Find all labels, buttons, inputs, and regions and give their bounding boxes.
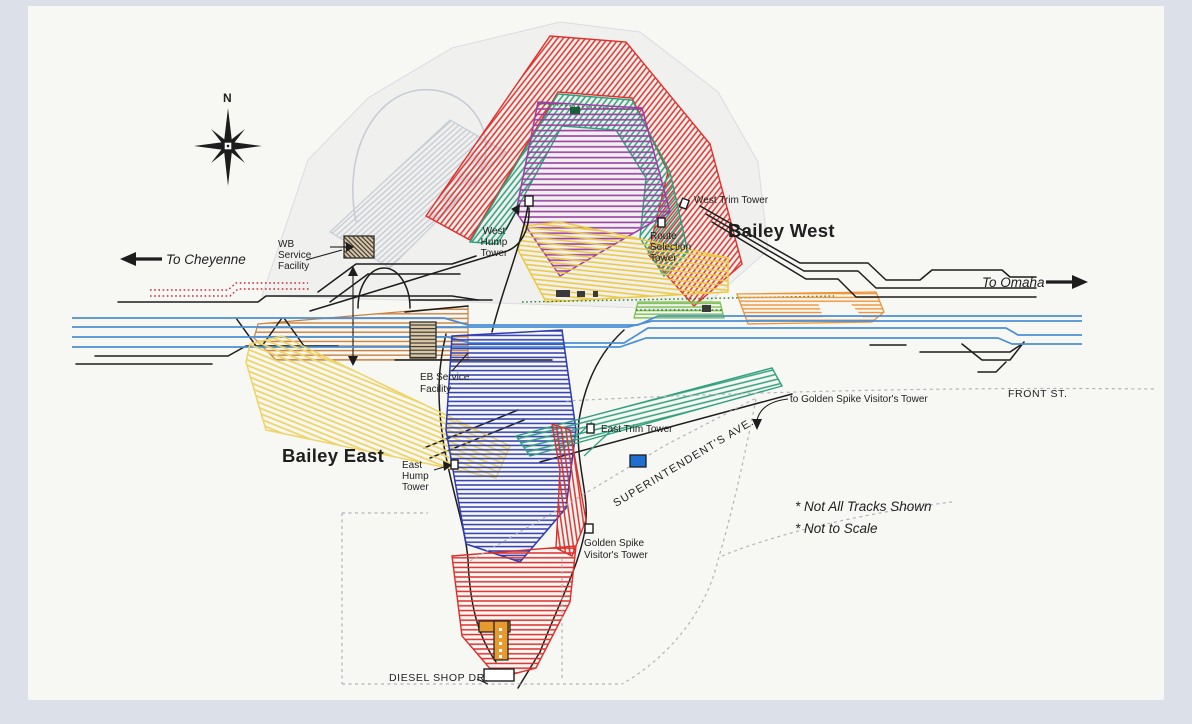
svg-text:WB: WB xyxy=(278,239,294,250)
blue-building xyxy=(630,455,646,467)
svg-text:Tower: Tower xyxy=(650,253,677,264)
svg-text:Selection: Selection xyxy=(650,242,691,253)
svg-text:Visitor's Tower: Visitor's Tower xyxy=(584,550,648,561)
note-not-to-scale: * Not to Scale xyxy=(795,521,878,536)
svg-text:Tower: Tower xyxy=(481,248,508,259)
svg-text:Route: Route xyxy=(650,231,677,242)
svg-text:Facility: Facility xyxy=(278,261,309,272)
north-label: N xyxy=(223,91,232,105)
to-omaha-label: To Omaha xyxy=(982,275,1045,290)
svg-text:Service: Service xyxy=(278,250,312,261)
diesel-shop-dr-label: DIESEL SHOP DR. xyxy=(389,672,488,684)
east-trim-tower-label: East Trim Tower xyxy=(601,424,673,435)
svg-text:Tower: Tower xyxy=(402,482,429,493)
to-cheyenne-label: To Cheyenne xyxy=(166,252,246,267)
svg-text:East: East xyxy=(402,460,422,471)
route-selection-tower-marker xyxy=(658,218,665,227)
svg-text:Golden Spike: Golden Spike xyxy=(584,538,644,549)
front-st-label: FRONT ST. xyxy=(1008,388,1067,400)
note-not-all-tracks: * Not All Tracks Shown xyxy=(795,499,932,514)
golden-spike-tower-marker xyxy=(585,524,593,533)
bailey-yard-map: N To Cheyenne To Omaha Bailey West Baile… xyxy=(0,0,1192,724)
east-trim-tower-marker xyxy=(587,424,594,433)
bailey-west-label: Bailey West xyxy=(728,220,835,241)
svg-text:Hump: Hump xyxy=(402,471,429,482)
eb-service-facility-building xyxy=(410,322,436,358)
golden-spike-tower-label: Golden Spike Visitor's Tower xyxy=(584,538,648,561)
bowl-building xyxy=(570,107,580,114)
bailey-east-label: Bailey East xyxy=(282,445,384,466)
golden-spike-leader-label: to Golden Spike Visitor's Tower xyxy=(790,394,928,405)
yard-diagram-canvas: N To Cheyenne To Omaha Bailey West Baile… xyxy=(0,0,1192,724)
svg-text:West: West xyxy=(483,226,506,237)
svg-text:Facility: Facility xyxy=(420,384,451,395)
east-hump-tower-marker xyxy=(451,460,458,469)
svg-text:Hump: Hump xyxy=(481,237,508,248)
west-trim-tower-label: West Trim Tower xyxy=(694,195,769,206)
west-hump-tower-marker xyxy=(525,196,533,206)
svg-text:EB Service: EB Service xyxy=(420,372,470,383)
west-hump-tower-label: West Hump Tower xyxy=(481,226,508,259)
